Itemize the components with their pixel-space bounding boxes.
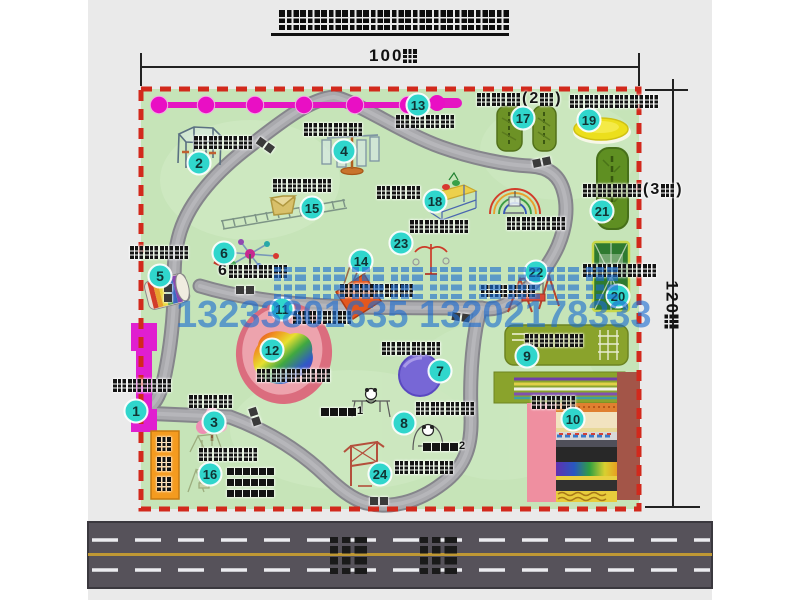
svg-text:19: 19 xyxy=(582,113,596,128)
svg-text:15: 15 xyxy=(305,201,319,216)
svg-text:3: 3 xyxy=(210,414,218,430)
svg-text:16: 16 xyxy=(203,467,217,482)
svg-text:12: 12 xyxy=(265,343,279,358)
svg-text:13: 13 xyxy=(411,98,425,113)
svg-text:17: 17 xyxy=(516,111,530,126)
svg-text:4: 4 xyxy=(340,143,348,159)
svg-text:2: 2 xyxy=(195,155,203,171)
svg-text:24: 24 xyxy=(373,467,388,482)
svg-text:23: 23 xyxy=(394,236,408,251)
svg-text:21: 21 xyxy=(595,204,609,219)
svg-text:5: 5 xyxy=(156,268,164,284)
svg-text:1: 1 xyxy=(132,403,140,419)
svg-text:7: 7 xyxy=(436,363,444,379)
svg-text:8: 8 xyxy=(400,415,408,431)
svg-text:9: 9 xyxy=(523,348,531,364)
svg-text:18: 18 xyxy=(428,194,442,209)
svg-text:6: 6 xyxy=(220,245,228,261)
svg-text:10: 10 xyxy=(566,412,580,427)
